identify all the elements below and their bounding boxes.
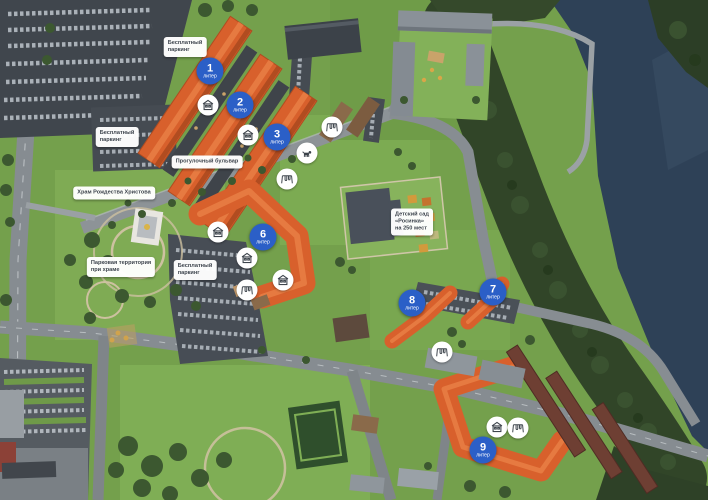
playground-icon — [277, 169, 298, 190]
map-label-kindergarten: Детский сад«Росинка»на 250 мест — [391, 209, 433, 236]
storefront-icon — [273, 270, 294, 291]
dog-walking-icon — [297, 143, 318, 164]
map-label-free-parking-west: Бесплатныйпаркинг — [96, 127, 139, 147]
building-marker-6[interactable]: 6литер — [250, 224, 277, 251]
building-label: литер — [256, 239, 270, 245]
building-label: литер — [476, 452, 490, 458]
building-label: литер — [233, 107, 247, 113]
building-marker-2[interactable]: 2литер — [227, 92, 254, 119]
building-number: 3 — [274, 129, 280, 139]
map-label-line: Храм Рождества Христова — [77, 190, 151, 197]
storefront-icon — [237, 248, 258, 269]
masterplan-map: 1литер2литер3литер6литер7литер8литер9лит… — [0, 0, 708, 500]
map-label-free-parking-north: Бесплатныйпаркинг — [164, 37, 207, 57]
map-label-line: паркинг — [178, 270, 213, 277]
map-label-line: Бесплатный — [178, 263, 213, 270]
map-label-line: Бесплатный — [100, 130, 135, 137]
playground-icon — [237, 280, 258, 301]
building-label: литер — [203, 73, 217, 79]
building-number: 2 — [237, 97, 243, 107]
playground-icon — [432, 342, 453, 363]
building-label: литер — [486, 294, 500, 300]
building-number: 9 — [480, 442, 486, 452]
map-label-line: Парковая территория — [91, 260, 151, 267]
map-label-line: при храме — [91, 267, 151, 274]
playground-icon — [322, 117, 343, 138]
storefront-icon — [198, 95, 219, 116]
building-marker-9[interactable]: 9литер — [470, 437, 497, 464]
building-marker-3[interactable]: 3литер — [264, 124, 291, 151]
building-marker-1[interactable]: 1литер — [197, 58, 224, 85]
map-label-boulevard: Прогулочный бульвар — [172, 156, 243, 169]
building-number: 7 — [490, 284, 496, 294]
storefront-icon — [238, 125, 259, 146]
map-label-line: «Росинка» — [395, 219, 429, 226]
map-label-park-territory: Парковая территорияпри храме — [87, 257, 155, 277]
map-label-line: Детский сад — [395, 212, 429, 219]
storefront-icon — [487, 417, 508, 438]
map-label-church: Храм Рождества Христова — [73, 187, 155, 200]
building-marker-8[interactable]: 8литер — [399, 290, 426, 317]
storefront-icon — [208, 222, 229, 243]
building-marker-7[interactable]: 7литер — [480, 279, 507, 306]
building-number: 8 — [409, 295, 415, 305]
playground-icon — [508, 418, 529, 439]
map-label-line: паркинг — [168, 47, 203, 54]
map-label-line: паркинг — [100, 137, 135, 144]
map-label-line: на 250 мест — [395, 225, 429, 232]
map-label-free-parking-center: Бесплатныйпаркинг — [174, 260, 217, 280]
map-label-line: Прогулочный бульвар — [176, 159, 239, 166]
marker-layer: 1литер2литер3литер6литер7литер8литер9лит… — [0, 0, 708, 500]
building-label: литер — [270, 139, 284, 145]
building-label: литер — [405, 305, 419, 311]
building-number: 1 — [207, 63, 213, 73]
map-label-line: Бесплатный — [168, 40, 203, 47]
building-number: 6 — [260, 229, 266, 239]
